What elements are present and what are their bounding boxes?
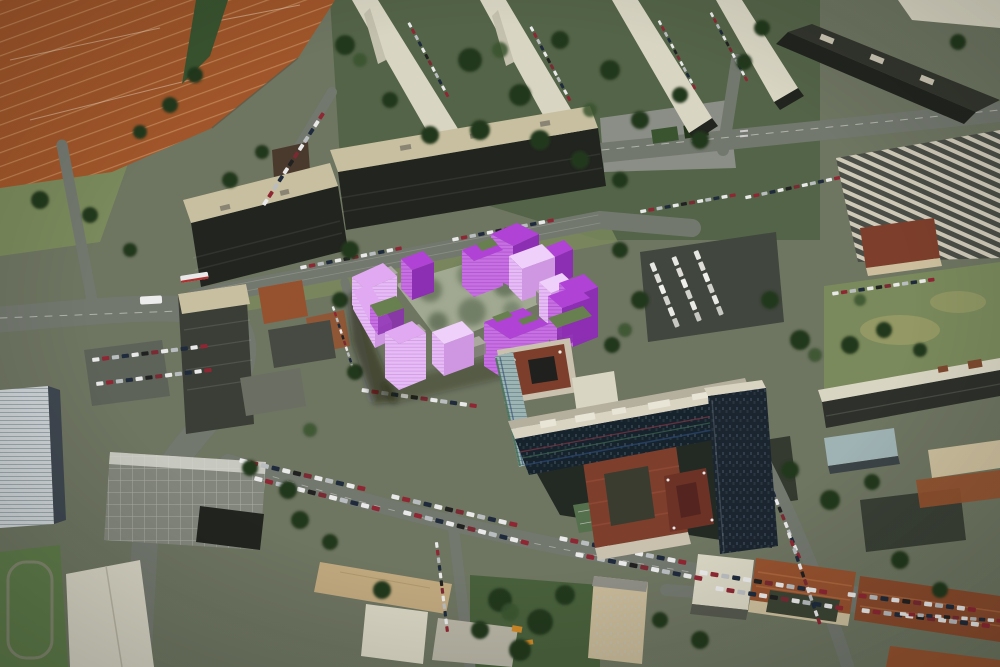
vignette-overlay <box>0 0 1000 667</box>
aerial-map-view[interactable] <box>0 0 1000 667</box>
aerial-canvas[interactable] <box>0 0 1000 667</box>
